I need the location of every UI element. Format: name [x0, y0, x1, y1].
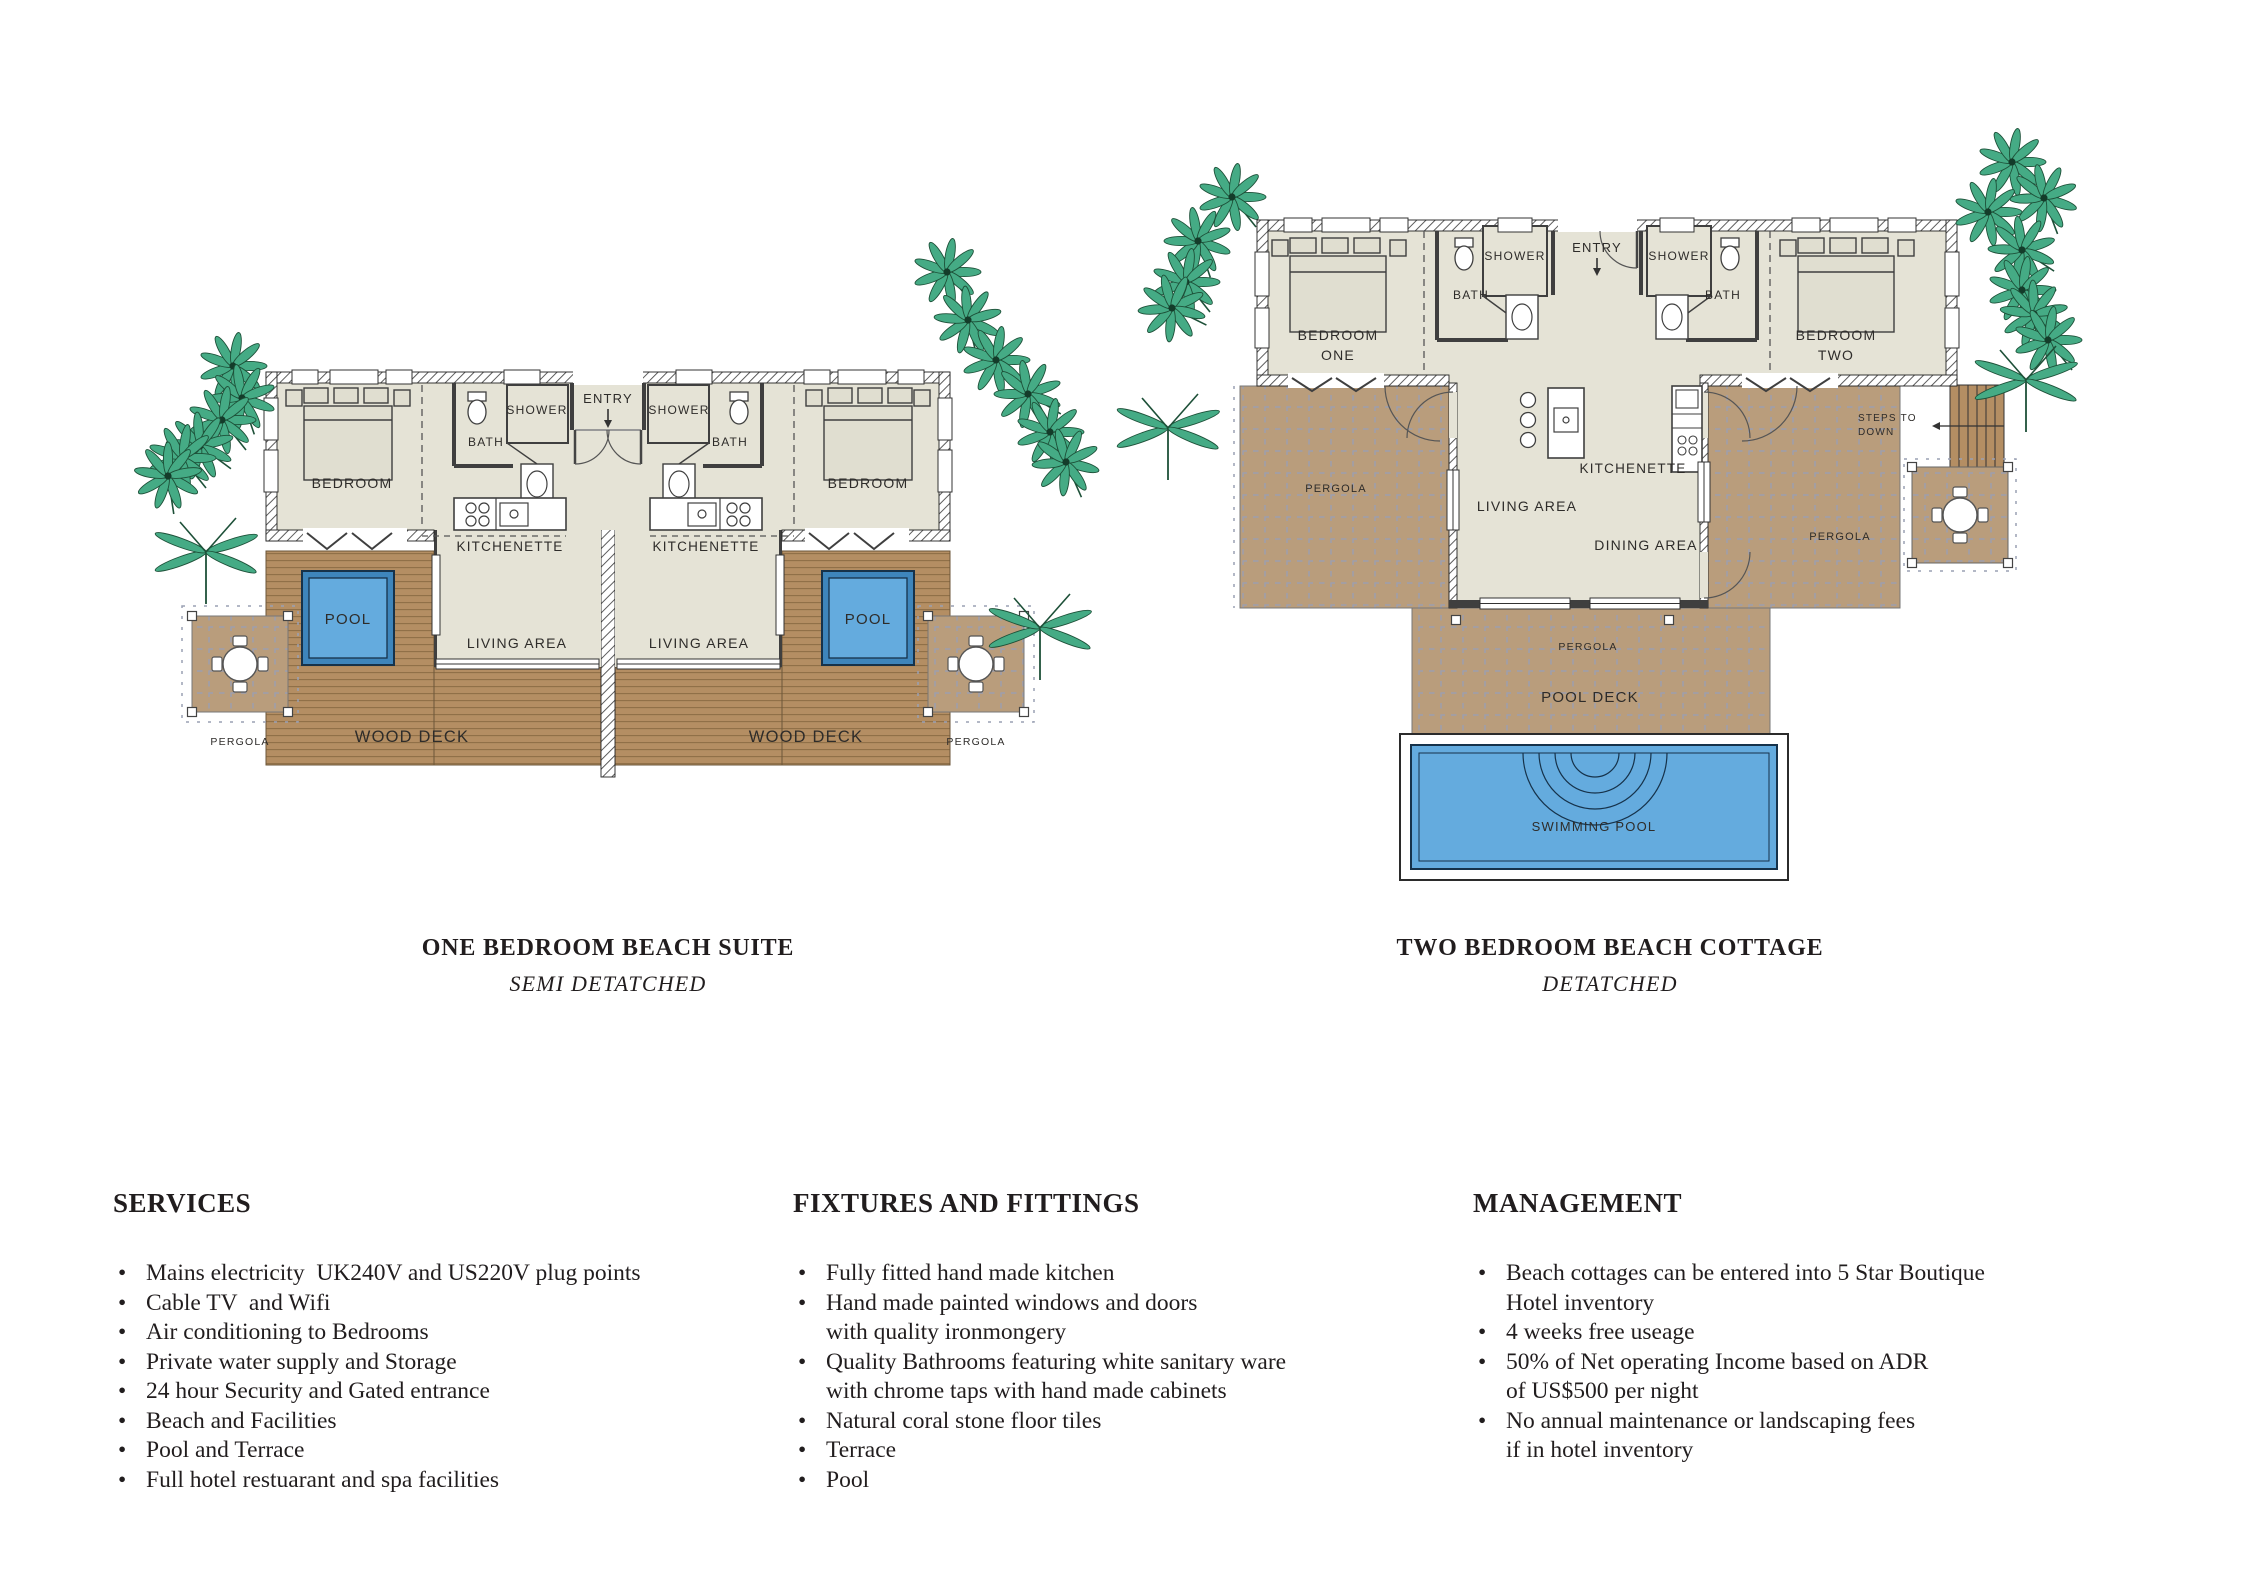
list-item: Cable TV and Wifi [113, 1289, 733, 1319]
plan-right-subtitle: DETATCHED [1300, 971, 1920, 997]
list-item: Pool and Terrace [113, 1436, 733, 1466]
list-item: Terrace [793, 1436, 1433, 1466]
label-pergola-right: PERGOLA [946, 736, 1005, 748]
label-shower-left: SHOWER [506, 403, 567, 417]
section-fixtures: FIXTURES AND FITTINGS Fully fitted hand … [793, 1188, 1433, 1495]
caption-left: ONE BEDROOM BEACH SUITE SEMI DETATCHED [298, 935, 918, 997]
label-bedroom-two-1: BEDROOM [1796, 327, 1877, 343]
item-text: Air conditioning to Bedrooms [146, 1319, 429, 1345]
item-text: Pool [826, 1467, 869, 1493]
label-wood-deck-left: WOOD DECK [355, 728, 469, 746]
plan-one-bedroom-beach-suite: ENTRY BEDROOM BEDROOM SHOWER SHOWER BATH… [182, 370, 1034, 777]
list-item: Private water supply and Storage [113, 1348, 733, 1378]
label-living-left: LIVING AREA [467, 635, 567, 651]
item-text: Pool and Terrace [146, 1437, 304, 1463]
label-shower-left: SHOWER [1484, 249, 1545, 263]
list-item: 4 weeks free useage [1473, 1318, 2133, 1348]
plan-two-bedroom-beach-cottage: ENTRY BEDROOM ONE BEDROOM TWO SHOWER SHO… [1234, 218, 2016, 880]
item-text: with quality ironmongery [826, 1319, 1066, 1345]
list-item: Air conditioning to Bedrooms [113, 1318, 733, 1348]
item-text: Cable TV and Wifi [146, 1290, 330, 1316]
label-bedroom-one-2: ONE [1321, 347, 1355, 363]
list-item-continuation: if in hotel inventory [1473, 1436, 2133, 1466]
label-kitchenette-left: KITCHENETTE [457, 539, 564, 554]
item-text: No annual maintenance or landscaping fee… [1506, 1408, 1915, 1434]
label-pool-deck: POOL DECK [1541, 689, 1639, 706]
pergola-table [1904, 459, 2016, 571]
item-text: Mains electricity UK240V and US220V plug… [146, 1260, 641, 1286]
label-entry: ENTRY [583, 391, 633, 406]
list-item: Pool [793, 1466, 1433, 1496]
item-text: Terrace [826, 1437, 896, 1463]
list-item: Natural coral stone floor tiles [793, 1407, 1433, 1437]
label-bath-right: BATH [712, 435, 748, 449]
label-pool-right: POOL [845, 611, 891, 628]
item-text: Private water supply and Storage [146, 1349, 457, 1375]
item-text: with chrome taps with hand made cabinets [826, 1378, 1227, 1404]
item-text: Natural coral stone floor tiles [826, 1408, 1101, 1434]
section-heading: SERVICES [113, 1188, 733, 1219]
label-bedroom-left: BEDROOM [312, 475, 393, 491]
list-item: 50% of Net operating Income based on ADR [1473, 1348, 2133, 1378]
item-text: of US$500 per night [1506, 1378, 1699, 1404]
pergola-left [182, 606, 298, 722]
list-item: Quality Bathrooms featuring white sanita… [793, 1348, 1433, 1378]
item-text: Fully fitted hand made kitchen [826, 1260, 1114, 1286]
list-item: Hand made painted windows and doors [793, 1289, 1433, 1319]
label-shower-right: SHOWER [1648, 249, 1709, 263]
list-item: Beach cottages can be entered into 5 Sta… [1473, 1259, 2133, 1289]
list-item-continuation: with chrome taps with hand made cabinets [793, 1377, 1433, 1407]
item-text: if in hotel inventory [1506, 1437, 1693, 1463]
item-text: Beach and Facilities [146, 1408, 337, 1434]
plan-left-title: ONE BEDROOM BEACH SUITE [298, 935, 918, 962]
item-text: Beach cottages can be entered into 5 Sta… [1506, 1260, 1985, 1286]
item-text: Hand made painted windows and doors [826, 1290, 1197, 1316]
label-bath-left: BATH [468, 435, 504, 449]
label-entry: ENTRY [1572, 240, 1622, 255]
label-pergola-left: PERGOLA [210, 736, 269, 748]
list-item: Full hotel restuarant and spa facilities [113, 1466, 733, 1496]
item-text: Full hotel restuarant and spa facilities [146, 1467, 499, 1493]
label-bedroom-two-2: TWO [1818, 347, 1854, 363]
label-pool-left: POOL [325, 611, 371, 628]
label-living-area: LIVING AREA [1477, 498, 1577, 514]
label-pergola-south: PERGOLA [1558, 641, 1617, 653]
label-bedroom-one-1: BEDROOM [1298, 327, 1379, 343]
item-text: Hotel inventory [1506, 1290, 1654, 1316]
list-item: Mains electricity UK240V and US220V plug… [113, 1259, 733, 1289]
list-item-continuation: with quality ironmongery [793, 1318, 1433, 1348]
item-text: 4 weeks free useage [1506, 1319, 1695, 1345]
label-dining-area: DINING AREA [1594, 537, 1697, 553]
list-item: 24 hour Security and Gated entrance [113, 1377, 733, 1407]
item-text: 50% of Net operating Income based on ADR [1506, 1349, 1928, 1375]
label-wood-deck-right: WOOD DECK [749, 728, 863, 746]
list-item: Beach and Facilities [113, 1407, 733, 1437]
item-text: 24 hour Security and Gated entrance [146, 1378, 490, 1404]
label-living-right: LIVING AREA [649, 635, 749, 651]
caption-right: TWO BEDROOM BEACH COTTAGE DETATCHED [1300, 935, 1920, 997]
brochure-page: ENTRY BEDROOM BEDROOM SHOWER SHOWER BATH… [0, 0, 2248, 1594]
plan-right-title: TWO BEDROOM BEACH COTTAGE [1300, 935, 1920, 962]
label-bath-right: BATH [1705, 288, 1741, 302]
label-bath-left: BATH [1453, 288, 1489, 302]
label-shower-right: SHOWER [648, 403, 709, 417]
label-bedroom-right: BEDROOM [828, 475, 909, 491]
label-steps-2: DOWN [1858, 427, 1894, 438]
list-item: No annual maintenance or landscaping fee… [1473, 1407, 2133, 1437]
plan-left-subtitle: SEMI DETATCHED [298, 971, 918, 997]
section-heading: MANAGEMENT [1473, 1188, 2133, 1219]
list-item-continuation: Hotel inventory [1473, 1289, 2133, 1319]
label-steps-1: STEPS TO [1858, 413, 1917, 424]
list-item-continuation: of US$500 per night [1473, 1377, 2133, 1407]
label-kitchenette-right: KITCHENETTE [653, 539, 760, 554]
steps-to-beach [1932, 385, 2004, 467]
swimming-pool [1400, 734, 1788, 880]
item-text: Quality Bathrooms featuring white sanita… [826, 1349, 1286, 1375]
section-management: MANAGEMENT Beach cottages can be entered… [1473, 1188, 2133, 1466]
label-pergola-west: PERGOLA [1305, 483, 1367, 495]
section-services: SERVICES Mains electricity UK240V and US… [113, 1188, 733, 1495]
list-item: Fully fitted hand made kitchen [793, 1259, 1433, 1289]
section-heading: FIXTURES AND FITTINGS [793, 1188, 1433, 1219]
label-kitchenette: KITCHENETTE [1580, 461, 1687, 476]
label-swimming-pool: SWIMMING POOL [1532, 819, 1657, 834]
label-pergola-east: PERGOLA [1809, 531, 1871, 543]
